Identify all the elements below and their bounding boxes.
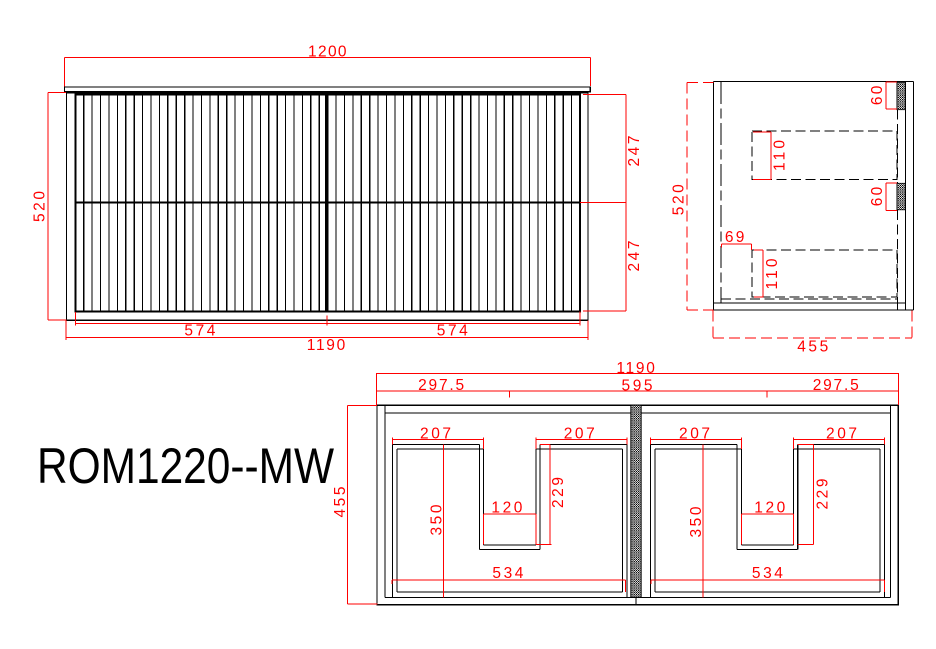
svg-text:120: 120 <box>491 499 522 516</box>
svg-text:207: 207 <box>826 426 857 443</box>
svg-text:595: 595 <box>622 377 653 394</box>
svg-text:520: 520 <box>670 184 687 215</box>
svg-text:207: 207 <box>679 426 710 443</box>
svg-text:574: 574 <box>437 323 468 340</box>
svg-text:60: 60 <box>869 186 886 206</box>
svg-text:207: 207 <box>420 426 451 443</box>
svg-text:574: 574 <box>184 323 215 340</box>
svg-text:120: 120 <box>754 499 785 516</box>
svg-text:297.5: 297.5 <box>813 377 859 394</box>
svg-text:207: 207 <box>564 426 595 443</box>
svg-text:110: 110 <box>772 140 789 171</box>
svg-text:ROM1220--MW: ROM1220--MW <box>37 438 335 494</box>
svg-text:1200: 1200 <box>308 44 347 61</box>
svg-text:455: 455 <box>332 487 349 518</box>
svg-text:534: 534 <box>492 565 523 582</box>
svg-text:455: 455 <box>797 339 828 356</box>
svg-text:229: 229 <box>814 479 831 510</box>
svg-text:247: 247 <box>626 136 643 167</box>
svg-text:520: 520 <box>32 191 49 222</box>
svg-text:60: 60 <box>869 85 886 105</box>
svg-text:110: 110 <box>764 258 781 289</box>
svg-text:1190: 1190 <box>307 337 346 354</box>
svg-text:1190: 1190 <box>616 360 655 377</box>
svg-text:247: 247 <box>626 241 643 272</box>
svg-text:297.5: 297.5 <box>418 377 464 394</box>
svg-text:350: 350 <box>429 504 446 535</box>
svg-text:534: 534 <box>752 565 783 582</box>
svg-text:229: 229 <box>550 477 567 508</box>
svg-text:350: 350 <box>688 506 705 537</box>
